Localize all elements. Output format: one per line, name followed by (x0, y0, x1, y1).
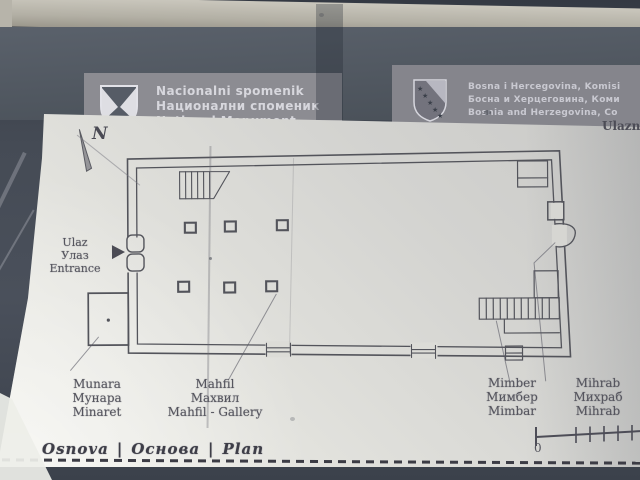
header-right-line1: Bosna i Hercegovina, Komisi (468, 81, 620, 94)
edge-note-label: Ulazn (602, 119, 640, 133)
minaret-base (88, 293, 128, 345)
plan-caption: Osnova|Основа|Plan (38, 440, 268, 458)
glass-speck (209, 257, 212, 260)
minaret-label: Munara Мунара Minaret (57, 377, 137, 419)
header-left-line1: Nacionalni spomenik (156, 84, 320, 99)
corner-structure (518, 161, 548, 187)
mihrab-niche (552, 224, 576, 247)
mahfil-label: Mahfil Махвил Mahfil - Gallery (150, 377, 280, 419)
sign-photo: Nacionalni spomenik Национални споменик … (0, 0, 640, 480)
mihrab-label: Mihrab Михраб Mihrab (558, 376, 638, 418)
scale-zero-label: 0 (534, 441, 542, 455)
plan-columns (178, 220, 288, 293)
plan-window (265, 340, 437, 359)
mahfil-stairs (180, 172, 230, 199)
leader-lines (70, 243, 556, 384)
glass-speck (290, 417, 295, 421)
glass-reflection-streak (0, 210, 35, 276)
right-wall-window (548, 202, 565, 220)
header-left-line2: Национални споменик (156, 99, 320, 114)
scale-bar (530, 422, 640, 458)
entrance-label: Ulaz Улаз Entrance (40, 236, 110, 275)
entrance-arrow-icon (112, 245, 125, 259)
compass-north-label: N (92, 124, 108, 144)
bih-coat-of-arms-icon: ★ ★ ★ ★ ★ (412, 78, 448, 122)
header-right-line2: Босна и Херцеговина, Коми (468, 94, 620, 107)
bottom-wall-pilaster (505, 346, 522, 360)
floor-plan-drawing (67, 121, 583, 389)
mimber-label: Mimber Мимбер Mimbar (472, 376, 552, 418)
glass-speck (319, 13, 324, 17)
entrance-portal (127, 235, 144, 271)
svg-text:★: ★ (437, 112, 443, 120)
glass-seam (316, 4, 343, 120)
glass-speck (484, 110, 491, 115)
compass-needle-icon (77, 129, 139, 185)
mimber-stairs (479, 271, 559, 333)
